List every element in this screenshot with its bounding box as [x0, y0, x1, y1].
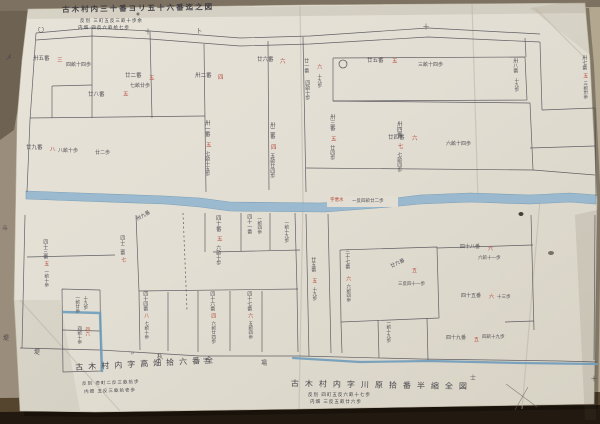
- photo-of-map: 古木村内三十番ヨリ五十六番迄之図 反別 三町五反三畝十歩余 内畑 四反六畝拾七歩…: [0, 0, 600, 424]
- cadastral-map-canvas: [0, 0, 600, 424]
- river-label-gap: [327, 196, 398, 207]
- ink-spot: [519, 212, 524, 216]
- ink-spot: [137, 13, 140, 16]
- ink-spot: [548, 251, 554, 255]
